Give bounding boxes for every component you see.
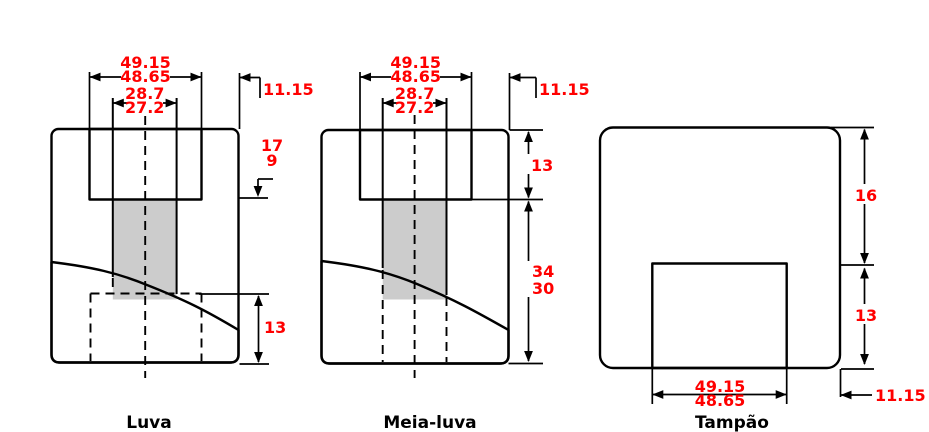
figure-meia-luva: 49.15 48.65 28.7 27.2 11.15: [322, 53, 590, 432]
fittings-dimension-drawing: 49.15 48.65 28.7 27.2 11.15 17 9: [0, 0, 929, 432]
figure-tampao: 16 13 49.15 48.65 11.15: [600, 128, 926, 432]
luva-dim-depth: 17 9: [240, 136, 284, 198]
luva-dim-socket-depth: 13: [199, 294, 286, 364]
meia-luva-offset-value: 11.15: [539, 80, 590, 99]
luva-label: Luva: [126, 413, 172, 432]
arrow-left: [360, 73, 371, 82]
luva-depth-min-value: 9: [266, 151, 277, 170]
meia-luva-body-depth-min-value: 30: [532, 279, 554, 298]
arrow-left: [113, 99, 124, 108]
tampao-dim-top-thickness: 16: [831, 128, 879, 266]
tampao-dim-plug-depth: 13: [841, 268, 879, 370]
luva-bore-min-value: 27.2: [125, 98, 164, 117]
technical-drawing-canvas: 49.15 48.65 28.7 27.2 11.15 17 9: [0, 0, 929, 432]
meia-luva-dim-body-depth: 34 30: [509, 201, 558, 364]
tampao-dim-plug-width: 49.15 48.65: [652, 369, 786, 410]
arrow-down: [860, 354, 869, 365]
arrow-up: [524, 201, 533, 212]
arrow-down: [860, 253, 869, 264]
arrow-left: [90, 73, 101, 82]
luva-dim-bore: 28.7 27.2: [113, 84, 177, 117]
meia-luva-bore-min-value: 27.2: [395, 98, 434, 117]
tampao-offset-value: 11.15: [875, 386, 926, 405]
meia-luva-dim-bore: 28.7 27.2: [383, 84, 447, 117]
arrow-down: [254, 352, 263, 363]
arrow-up: [524, 131, 533, 142]
tampao-dim-offset: 11.15: [841, 369, 926, 405]
arrow-down: [254, 186, 263, 197]
arrow-right: [461, 73, 472, 82]
tampao-plug-depth-value: 13: [855, 306, 877, 325]
arrow-down: [524, 351, 533, 362]
arrow-right: [436, 99, 447, 108]
meia-luva-socket-depth-value: 13: [531, 156, 553, 175]
meia-luva-top-socket: [360, 130, 472, 200]
arrow-up: [860, 268, 869, 279]
tampao-body: [600, 128, 840, 369]
luva-socket-depth-value: 13: [264, 318, 286, 337]
arrow-left: [383, 99, 394, 108]
arrow-up: [254, 295, 263, 306]
meia-luva-label: Meia-luva: [383, 413, 476, 432]
meia-luva-dim-socket-depth: 13: [472, 130, 554, 200]
arrow-left: [652, 390, 663, 399]
arrow-up: [860, 129, 869, 140]
meia-luva-dim-offset: 11.15: [510, 73, 590, 130]
tampao-plug-recess: [652, 264, 786, 369]
figure-luva: 49.15 48.65 28.7 27.2 11.15 17 9: [52, 53, 314, 432]
tampao-label: Tampão: [695, 413, 769, 432]
tampao-top-thickness-value: 16: [855, 186, 877, 205]
arrow-down: [524, 188, 533, 199]
tampao-width-min-value: 48.65: [695, 391, 746, 410]
luva-offset-value: 11.15: [263, 80, 314, 99]
arrow-right: [776, 390, 787, 399]
luva-dim-offset: 11.15: [240, 73, 314, 129]
arrow-right: [166, 99, 177, 108]
arrow-right: [191, 73, 202, 82]
